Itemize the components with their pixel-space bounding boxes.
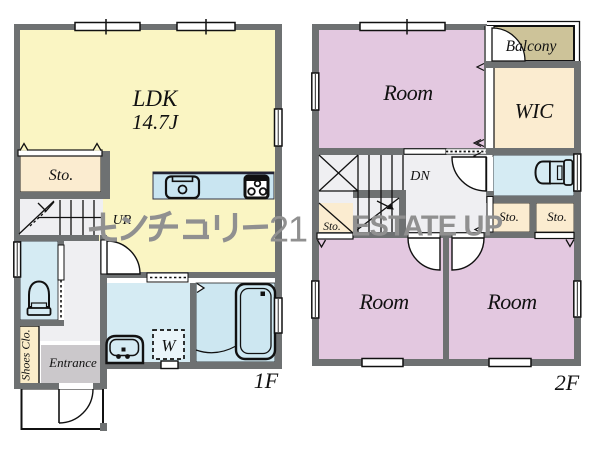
svg-text:2F: 2F [555,370,580,395]
svg-text:1F: 1F [254,368,279,393]
svg-text:Entrance: Entrance [48,355,97,370]
svg-text:Shoes Clo.: Shoes Clo. [19,329,33,380]
svg-text:Sto.: Sto. [323,221,341,233]
svg-text:Sto.: Sto. [49,167,73,184]
svg-text:14.7J: 14.7J [132,110,180,134]
svg-text:Room: Room [382,80,432,105]
svg-text:WIC: WIC [515,99,554,123]
svg-text:21: 21 [269,209,307,250]
svg-text:ESTATE UP: ESTATE UP [351,211,503,243]
svg-text:Balcony: Balcony [506,38,557,55]
svg-text:W: W [161,336,177,355]
svg-text:LDK: LDK [132,86,179,111]
svg-text:Sto.: Sto. [547,209,567,224]
svg-text:Room: Room [358,289,408,314]
svg-text:DN: DN [409,169,430,184]
svg-text:Room: Room [486,289,536,314]
